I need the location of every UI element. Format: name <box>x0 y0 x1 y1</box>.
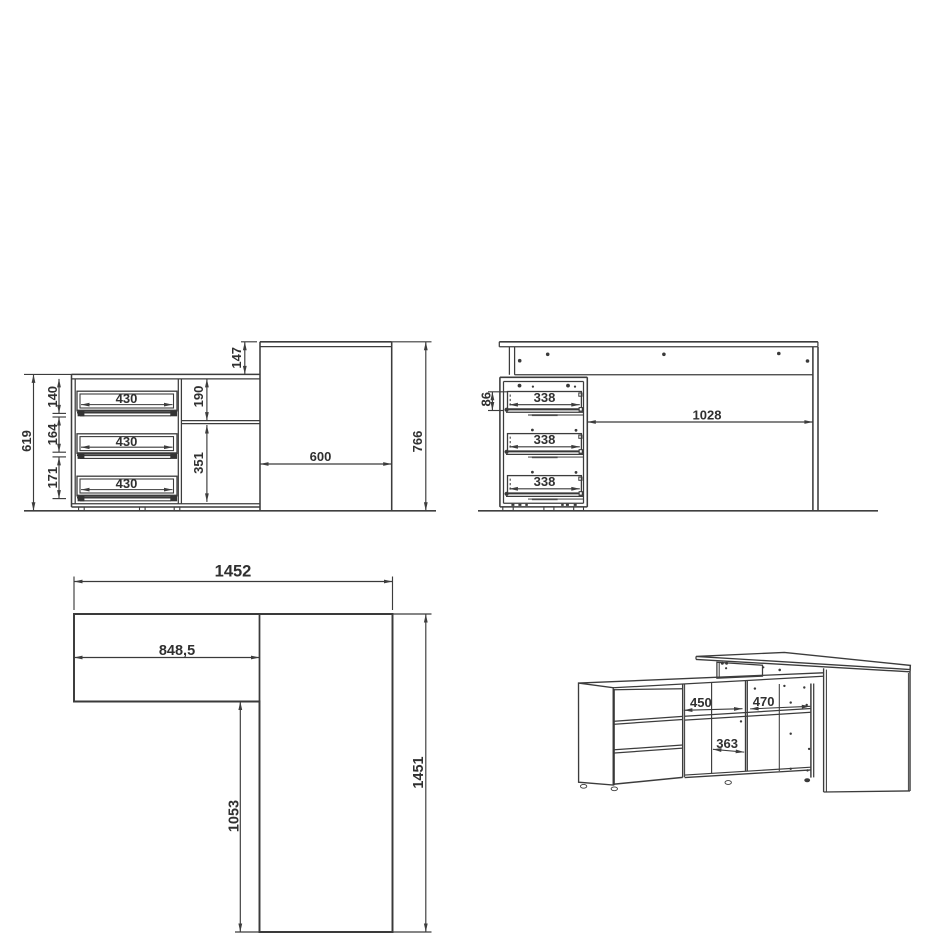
svg-text:338: 338 <box>534 390 556 405</box>
svg-text:338: 338 <box>534 432 556 447</box>
svg-text:140: 140 <box>45 386 60 408</box>
svg-text:164: 164 <box>45 423 60 445</box>
svg-text:1452: 1452 <box>215 563 252 581</box>
svg-text:619: 619 <box>19 430 34 452</box>
svg-text:430: 430 <box>116 434 138 449</box>
svg-text:766: 766 <box>410 431 425 453</box>
svg-text:147: 147 <box>229 347 244 369</box>
svg-text:1028: 1028 <box>693 408 722 423</box>
svg-text:430: 430 <box>116 476 138 491</box>
svg-text:450: 450 <box>690 695 712 710</box>
svg-text:190: 190 <box>191 386 206 408</box>
svg-text:430: 430 <box>116 391 138 406</box>
svg-text:1451: 1451 <box>411 756 427 788</box>
svg-text:363: 363 <box>716 736 738 751</box>
svg-text:351: 351 <box>191 452 206 474</box>
svg-text:470: 470 <box>753 694 775 709</box>
svg-text:338: 338 <box>534 474 556 489</box>
svg-text:171: 171 <box>45 467 60 489</box>
svg-text:848,5: 848,5 <box>159 643 195 659</box>
svg-text:1053: 1053 <box>226 800 242 832</box>
svg-text:86: 86 <box>478 392 493 406</box>
svg-text:600: 600 <box>310 449 332 464</box>
